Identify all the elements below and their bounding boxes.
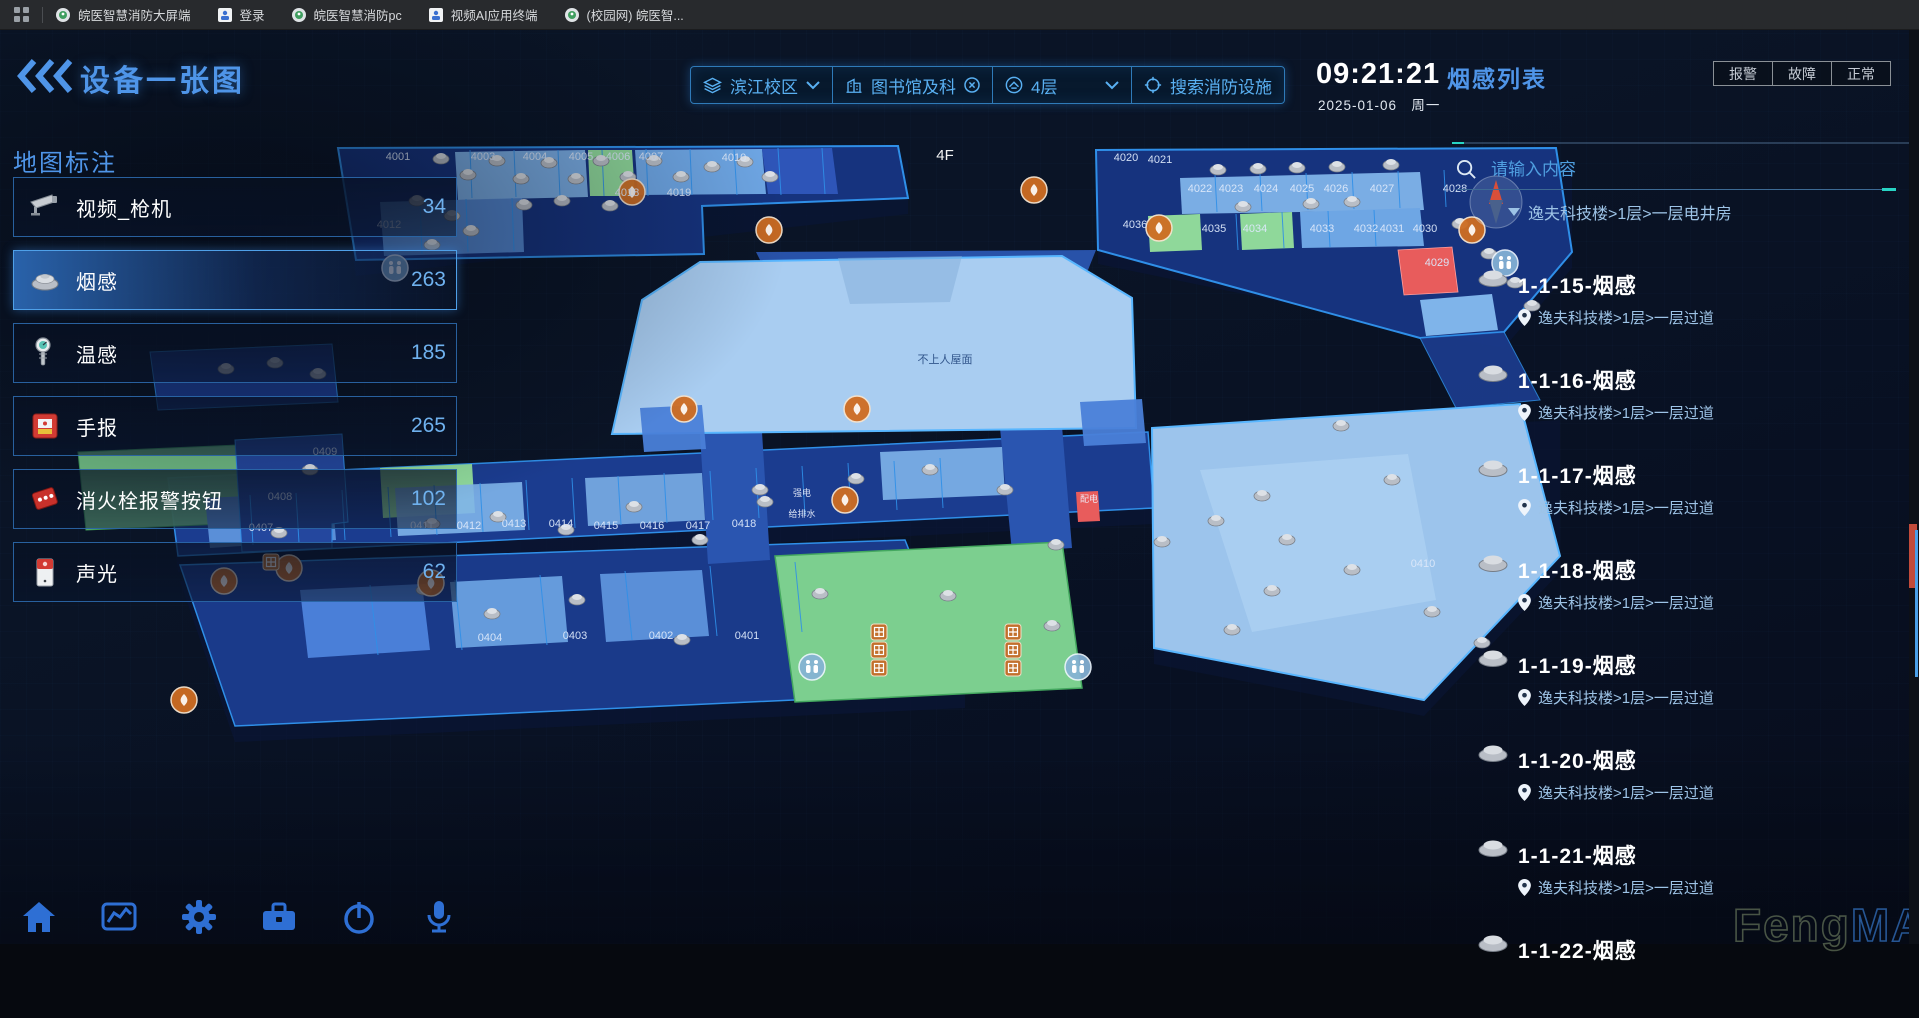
legend-count: 102 xyxy=(411,487,446,511)
device-title: 1-1-17-烟感 xyxy=(1518,448,1900,490)
legend-item-smoke[interactable]: 烟感 263 xyxy=(13,250,457,310)
legend-count: 34 xyxy=(423,195,446,219)
legend-count: 263 xyxy=(411,268,446,292)
bottom-dock xyxy=(20,898,458,936)
device-title: 1-1-18-烟感 xyxy=(1518,543,1900,585)
svg-text:4036: 4036 xyxy=(1123,219,1147,231)
svg-text:4027: 4027 xyxy=(1370,183,1394,195)
device-location: 逸夫科技楼>1层>一层过道 xyxy=(1538,592,1714,613)
power-icon[interactable] xyxy=(340,898,378,936)
legend-label: 手报 xyxy=(76,412,411,441)
legend-title: 地图标注 xyxy=(13,143,117,178)
svg-text:4021: 4021 xyxy=(1148,154,1172,166)
svg-text:强电: 强电 xyxy=(793,487,811,498)
legend-label: 温感 xyxy=(76,339,411,368)
smoke-detector-icon xyxy=(1476,836,1510,858)
smoke-detector-icon xyxy=(1476,361,1510,383)
divider xyxy=(42,7,43,23)
svg-text:0403: 0403 xyxy=(563,630,587,642)
svg-text:0402: 0402 xyxy=(649,630,673,642)
svg-text:0401: 0401 xyxy=(735,630,759,642)
crosshair-icon xyxy=(1144,76,1162,94)
device-title: 1-1-22-烟感 xyxy=(1518,923,1900,965)
svg-text:4024: 4024 xyxy=(1254,183,1278,195)
manual-call-point-icon xyxy=(28,409,62,443)
svg-text:4003: 4003 xyxy=(471,151,495,163)
device-list-item[interactable]: 1-1-17-烟感 逸夫科技楼>1层>一层过道 xyxy=(1480,448,1900,543)
building-select[interactable]: 图书馆及科 xyxy=(833,67,993,103)
bookmark-label: 视频AI应用终端 xyxy=(451,5,538,24)
date-value: 2025-01-06 xyxy=(1318,98,1397,113)
smoke-detector-icon xyxy=(28,263,62,297)
device-location: 逸夫科技楼>1层>一层过道 xyxy=(1538,687,1714,708)
bookmark-dashboard[interactable]: 皖医智慧消防大屏端 xyxy=(55,5,191,24)
filter-bar: 滨江校区 图书馆及科 4层 xyxy=(690,66,1285,104)
svg-text:4019: 4019 xyxy=(667,187,691,199)
legend-count: 62 xyxy=(423,560,446,584)
smoke-device-list: 1-1-15-烟感 逸夫科技楼>1层>一层过道 1-1-16-烟感 逸夫科技楼>… xyxy=(1480,258,1900,1018)
smoke-list-title: 烟感列表 xyxy=(1447,60,1547,94)
partial-location-text: 逸夫科技楼>1层>一层电井房 xyxy=(1528,205,1732,224)
svg-text:4022: 4022 xyxy=(1188,183,1212,195)
device-location: 逸夫科技楼>1层>一层过道 xyxy=(1538,307,1714,328)
campus-value: 滨江校区 xyxy=(730,73,798,98)
search-facility-button[interactable]: 搜索消防设施 xyxy=(1132,67,1284,103)
device-title: 1-1-20-烟感 xyxy=(1518,733,1900,775)
floor-icon xyxy=(1005,76,1023,94)
device-list-item[interactable]: 1-1-16-烟感 逸夫科技楼>1层>一层过道 xyxy=(1480,353,1900,448)
svg-text:4F: 4F xyxy=(936,147,954,164)
device-list-item[interactable]: 1-1-18-烟感 逸夫科技楼>1层>一层过道 xyxy=(1480,543,1900,638)
svg-text:0415: 0415 xyxy=(594,520,618,532)
svg-text:4018: 4018 xyxy=(615,187,639,199)
bookmark-label: (校园网) 皖医智... xyxy=(587,5,684,24)
scrollbar-track[interactable] xyxy=(1909,30,1919,944)
apps-grid-icon[interactable] xyxy=(14,7,30,23)
building-icon xyxy=(845,76,863,95)
location-pin-icon xyxy=(1518,784,1531,801)
bookmark-video-ai[interactable]: 视频AI应用终端 xyxy=(428,5,538,24)
svg-text:0416: 0416 xyxy=(640,520,664,532)
svg-text:0412: 0412 xyxy=(457,520,481,532)
svg-text:0414: 0414 xyxy=(549,518,573,530)
analytics-icon[interactable] xyxy=(100,898,138,936)
device-title: 1-1-16-烟感 xyxy=(1518,353,1900,395)
svg-text:0413: 0413 xyxy=(502,518,526,530)
floor-select[interactable]: 4层 xyxy=(993,67,1132,103)
svg-text:0410: 0410 xyxy=(1411,558,1435,570)
legend-count: 265 xyxy=(411,414,446,438)
app-favicon xyxy=(428,7,444,23)
svg-text:4032: 4032 xyxy=(1354,223,1378,235)
smoke-detector-icon xyxy=(1476,646,1510,668)
legend-label: 声光 xyxy=(76,558,423,587)
smoke-detector-icon xyxy=(1476,551,1510,573)
chevron-down-icon xyxy=(806,81,820,90)
svg-text:0417: 0417 xyxy=(686,520,710,532)
svg-text:4030: 4030 xyxy=(1413,223,1437,235)
svg-text:4020: 4020 xyxy=(1114,152,1138,164)
toolbox-icon[interactable] xyxy=(260,898,298,936)
location-pin-icon xyxy=(1518,404,1531,421)
fault-filter-button[interactable]: 故障 xyxy=(1772,61,1832,86)
svg-text:4010: 4010 xyxy=(722,152,746,164)
floor-value: 4层 xyxy=(1031,73,1097,98)
scrollbar-thumb[interactable] xyxy=(1915,530,1918,677)
camera-icon xyxy=(28,190,62,224)
device-location: 逸夫科技楼>1层>一层过道 xyxy=(1538,497,1714,518)
device-search-input[interactable] xyxy=(1491,160,1831,180)
marker-triangle-icon xyxy=(1508,208,1520,216)
panel-top-border xyxy=(1452,142,1919,144)
svg-text:4031: 4031 xyxy=(1380,223,1404,235)
device-list-item[interactable]: 1-1-21-烟感 逸夫科技楼>1层>一层过道 xyxy=(1480,828,1900,923)
device-location: 逸夫科技楼>1层>一层过道 xyxy=(1538,782,1714,803)
smoke-detector-icon xyxy=(1476,741,1510,763)
legend-label: 烟感 xyxy=(76,266,411,295)
app-favicon xyxy=(217,7,233,23)
smoke-detector-icon xyxy=(1476,931,1510,953)
svg-text:4007: 4007 xyxy=(639,151,663,163)
microphone-icon[interactable] xyxy=(420,898,458,936)
location-pin-icon xyxy=(1518,309,1531,326)
location-pin-icon xyxy=(1518,689,1531,706)
scrolled-list-item-partial[interactable]: 逸夫科技楼>1层>一层电井房 xyxy=(1508,205,1898,229)
collapse-back-icon[interactable] xyxy=(16,56,74,96)
chevron-down-icon xyxy=(1105,81,1119,90)
legend-label: 视频_枪机 xyxy=(76,193,423,222)
weekday-value: 周一 xyxy=(1411,98,1440,113)
badge-favicon xyxy=(564,7,580,23)
svg-text:4005: 4005 xyxy=(569,151,593,163)
campus-select[interactable]: 滨江校区 xyxy=(691,67,833,103)
hydrant-button-icon xyxy=(28,482,62,516)
svg-text:4033: 4033 xyxy=(1310,223,1334,235)
badge-favicon xyxy=(291,7,307,23)
bookmark-label: 皖医智慧消防大屏端 xyxy=(78,5,191,24)
svg-text:4025: 4025 xyxy=(1290,183,1314,195)
layers-icon xyxy=(703,76,722,95)
legend-item-hydrant[interactable]: 消火栓报警按钮 102 xyxy=(13,469,457,529)
svg-text:0418: 0418 xyxy=(732,518,756,530)
device-list-item[interactable]: 1-1-22-烟感 xyxy=(1480,923,1900,1018)
device-title: 1-1-15-烟感 xyxy=(1518,258,1900,300)
svg-text:4026: 4026 xyxy=(1324,183,1348,195)
bookmark-label: 皖医智慧消防pc xyxy=(314,5,402,24)
screen: 4F不上人屋面400140034004400540064007401040124… xyxy=(0,0,1919,944)
svg-text:4035: 4035 xyxy=(1202,223,1226,235)
smoke-detector-icon xyxy=(1476,266,1510,288)
legend-count: 185 xyxy=(411,341,446,365)
browser-bookmarks-bar: 皖医智慧消防大屏端 登录 皖医智慧消防pc 视频AI应用终端 (校园网) 皖医智… xyxy=(0,0,1919,30)
legend-label: 消火栓报警按钮 xyxy=(76,485,411,514)
device-search-box xyxy=(1456,150,1894,190)
svg-text:4029: 4029 xyxy=(1425,257,1449,269)
search-icon xyxy=(1456,159,1477,180)
svg-text:4006: 4006 xyxy=(606,151,630,163)
legend-item-manual[interactable]: 手报 265 xyxy=(13,396,457,456)
bookmark-campus[interactable]: (校园网) 皖医智... xyxy=(564,5,684,24)
status-filter-group: 报警 故障 正常 xyxy=(1714,61,1891,86)
settings-gear-icon[interactable] xyxy=(180,898,218,936)
sounder-strobe-icon xyxy=(28,555,62,589)
device-location: 逸夫科技楼>1层>一层过道 xyxy=(1538,402,1714,423)
home-icon[interactable] xyxy=(20,898,58,936)
clear-icon[interactable] xyxy=(964,77,980,93)
svg-text:配电: 配电 xyxy=(1080,493,1098,504)
thermometer-icon xyxy=(28,336,62,370)
clock-date: 2025-01-06 周一 xyxy=(1318,94,1440,114)
bookmark-login[interactable]: 登录 xyxy=(217,5,265,24)
badge-favicon xyxy=(55,7,71,23)
normal-filter-button[interactable]: 正常 xyxy=(1831,61,1891,86)
legend-item-camera[interactable]: 视频_枪机 34 xyxy=(13,177,457,237)
device-title: 1-1-19-烟感 xyxy=(1518,638,1900,680)
page-title: 设备一张图 xyxy=(80,56,245,100)
device-list-item[interactable]: 1-1-15-烟感 逸夫科技楼>1层>一层过道 xyxy=(1480,258,1900,353)
smoke-detector-icon xyxy=(1476,456,1510,478)
svg-text:4034: 4034 xyxy=(1243,223,1267,235)
building-value: 图书馆及科 xyxy=(871,73,956,98)
svg-text:给排水: 给排水 xyxy=(788,508,815,519)
legend-item-heat[interactable]: 温感 185 xyxy=(13,323,457,383)
device-list-item[interactable]: 1-1-20-烟感 逸夫科技楼>1层>一层过道 xyxy=(1480,733,1900,828)
legend-item-sounder[interactable]: 声光 62 xyxy=(13,542,457,602)
clock-time: 09:21:21 xyxy=(1316,58,1440,91)
svg-text:不上人屋面: 不上人屋面 xyxy=(918,353,973,366)
location-pin-icon xyxy=(1518,879,1531,896)
alarm-filter-button[interactable]: 报警 xyxy=(1713,61,1773,86)
device-list-item[interactable]: 1-1-19-烟感 逸夫科技楼>1层>一层过道 xyxy=(1480,638,1900,733)
bookmark-label: 登录 xyxy=(240,5,265,24)
location-pin-icon xyxy=(1518,594,1531,611)
device-title: 1-1-21-烟感 xyxy=(1518,828,1900,870)
svg-text:4023: 4023 xyxy=(1219,183,1243,195)
svg-text:4004: 4004 xyxy=(523,151,547,163)
device-location: 逸夫科技楼>1层>一层过道 xyxy=(1538,877,1714,898)
svg-text:4001: 4001 xyxy=(386,151,410,163)
bookmark-pc[interactable]: 皖医智慧消防pc xyxy=(291,5,402,24)
location-pin-icon xyxy=(1518,499,1531,516)
search-facility-label: 搜索消防设施 xyxy=(1170,73,1272,98)
map-legend: 视频_枪机 34 烟感 263 温感 185 xyxy=(13,177,457,615)
svg-text:0404: 0404 xyxy=(478,632,502,644)
